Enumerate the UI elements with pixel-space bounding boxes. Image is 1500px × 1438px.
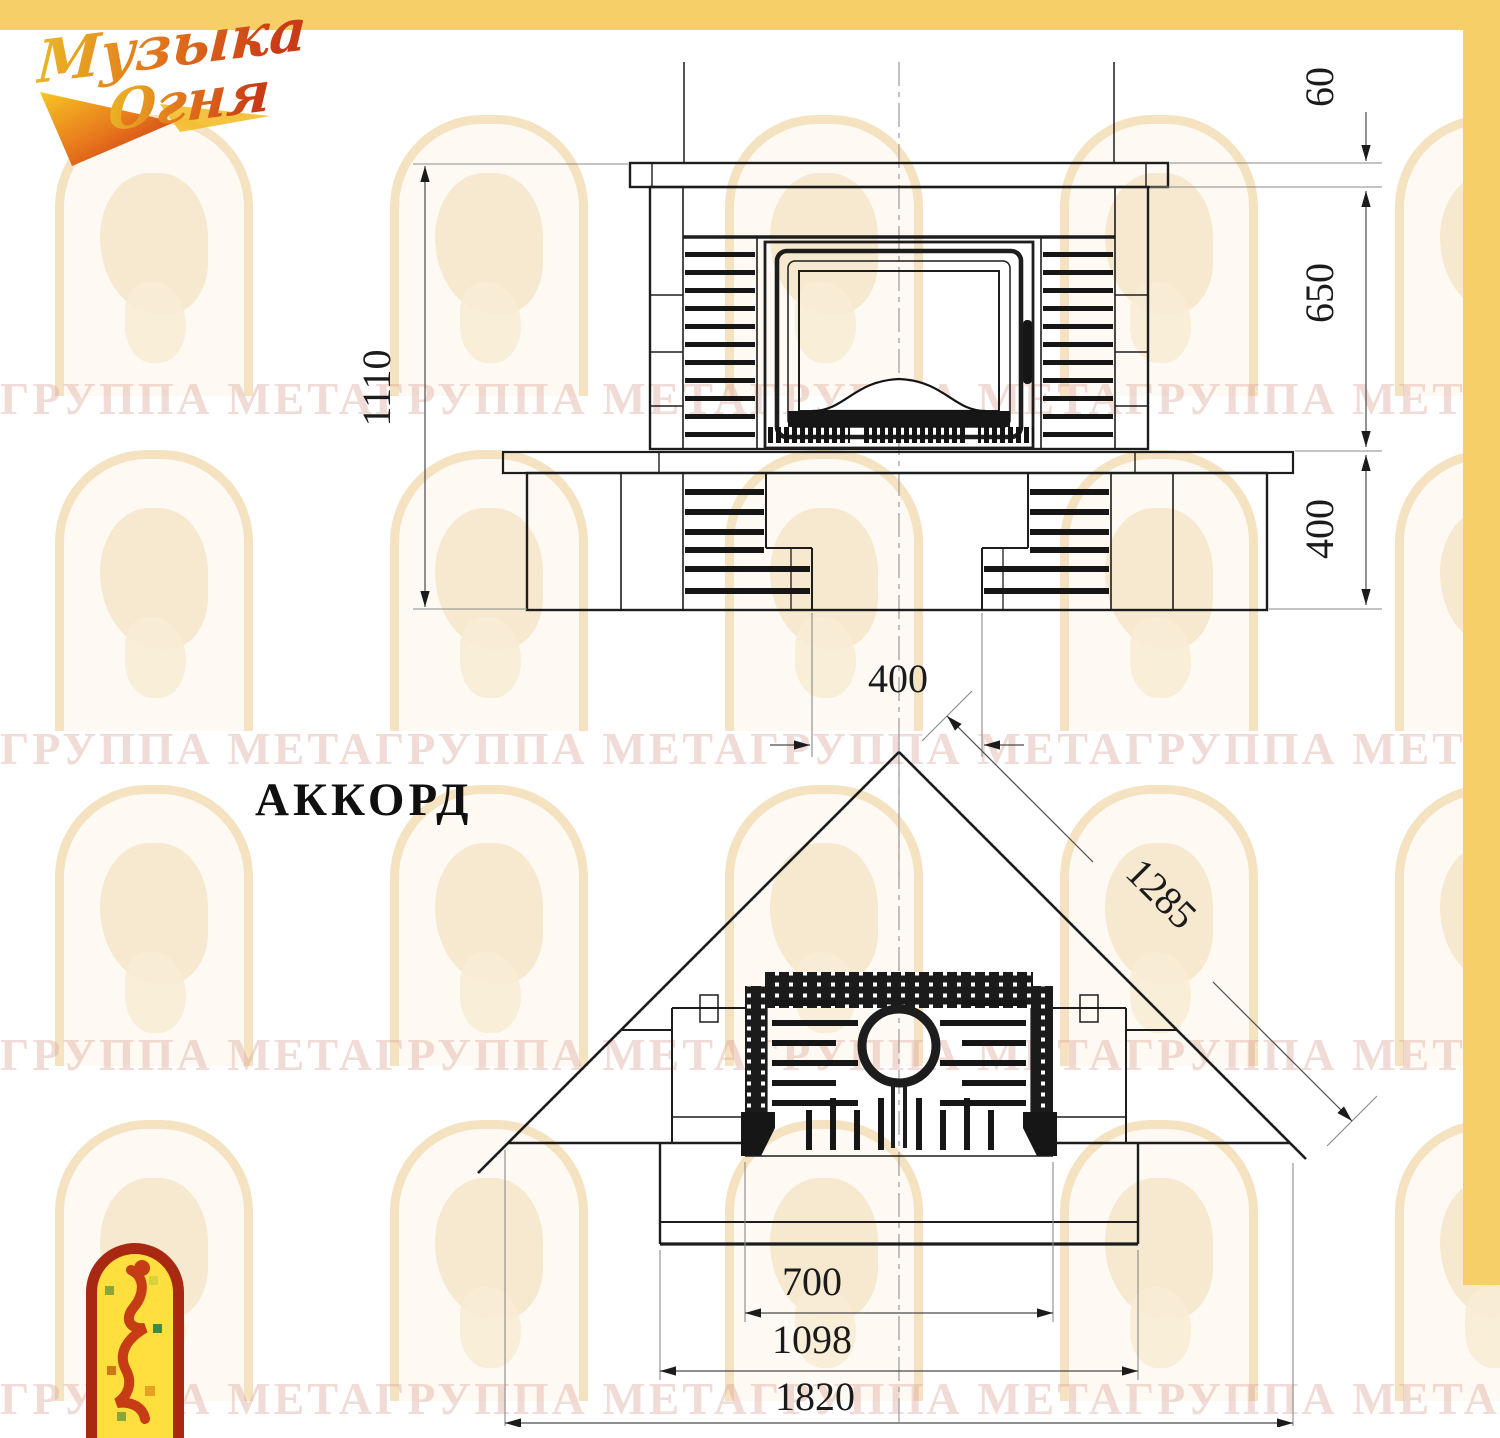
door-bottom-band xyxy=(788,411,1010,427)
plan-view: 1285 700 1098 1820 xyxy=(478,691,1377,1427)
brick-courses-left xyxy=(685,252,755,437)
brand-logo: Музыка Огня xyxy=(10,4,310,179)
log-retainer-arch xyxy=(812,379,986,411)
dim-opening-height: 650 xyxy=(1297,263,1342,323)
plan-dimensions: 1285 700 1098 1820 xyxy=(505,691,1377,1426)
fireplace-technical-drawing: 1110 60 650 400 400 АККОРД xyxy=(0,0,1500,1427)
model-title: АККОРД xyxy=(255,774,473,826)
dim-shelf-thickness: 60 xyxy=(1297,67,1342,107)
arch-flame-logo xyxy=(86,1243,184,1438)
dim-overall-width: 1820 xyxy=(775,1374,855,1419)
base xyxy=(527,473,1267,610)
front-view: 1110 60 650 400 400 xyxy=(354,62,1382,878)
dim-hearth-width: 1098 xyxy=(772,1317,852,1362)
flame-figure xyxy=(97,1254,173,1438)
dim-height: 1110 xyxy=(354,349,399,426)
dim-diagonal: 1285 xyxy=(1117,849,1205,937)
hearth-shelf xyxy=(503,452,1293,473)
dim-niche-width: 400 xyxy=(868,656,928,701)
brick-courses-right xyxy=(1043,252,1113,437)
grate-bars xyxy=(806,1098,994,1150)
dim-firebox-width: 700 xyxy=(782,1259,842,1304)
door-handle xyxy=(1023,320,1032,384)
air-grille xyxy=(768,427,850,443)
dim-base-height: 400 xyxy=(1297,499,1342,559)
